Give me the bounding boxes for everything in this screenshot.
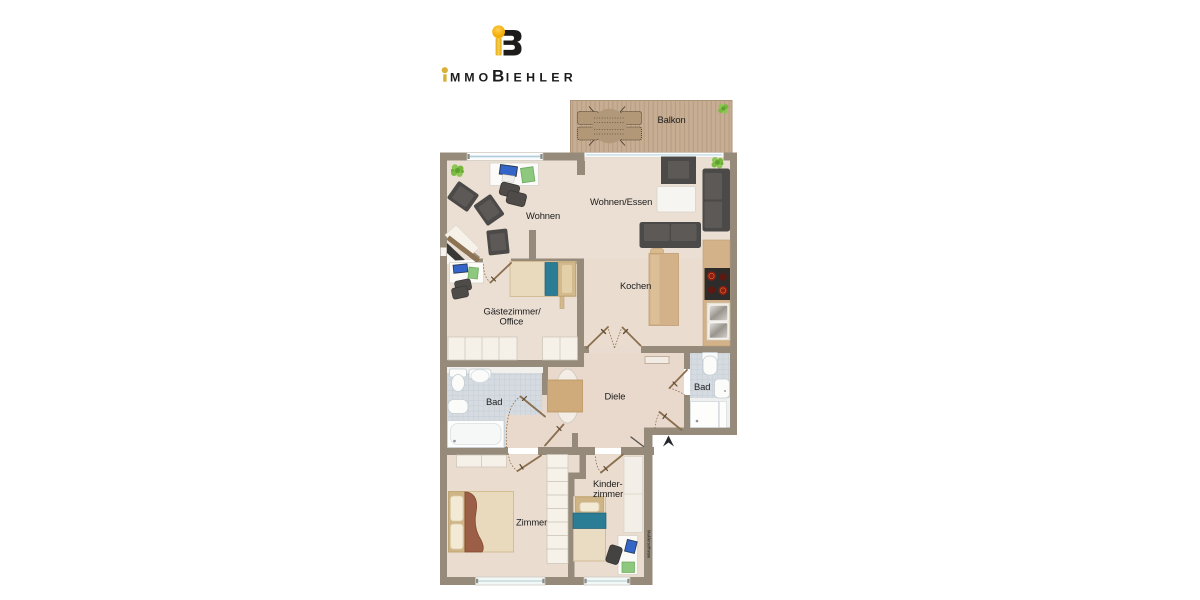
svg-text:Office: Office [500,316,524,327]
svg-text:IEHLER: IEHLER [506,71,577,85]
svg-text:Maklersoftware: Maklersoftware [647,530,652,559]
svg-text:MMO: MMO [450,71,492,85]
svg-text:B: B [492,67,504,86]
svg-text:zimmer: zimmer [593,488,623,499]
svg-text:Bad: Bad [486,396,502,407]
svg-text:Diele: Diele [605,391,626,402]
svg-text:Zimmer: Zimmer [516,517,547,528]
svg-text:Balkon: Balkon [658,114,686,125]
svg-text:Wohnen/Essen: Wohnen/Essen [590,196,652,207]
svg-text:Wohnen: Wohnen [526,210,560,221]
svg-text:Kochen: Kochen [620,280,651,291]
svg-text:Bad: Bad [694,381,710,392]
